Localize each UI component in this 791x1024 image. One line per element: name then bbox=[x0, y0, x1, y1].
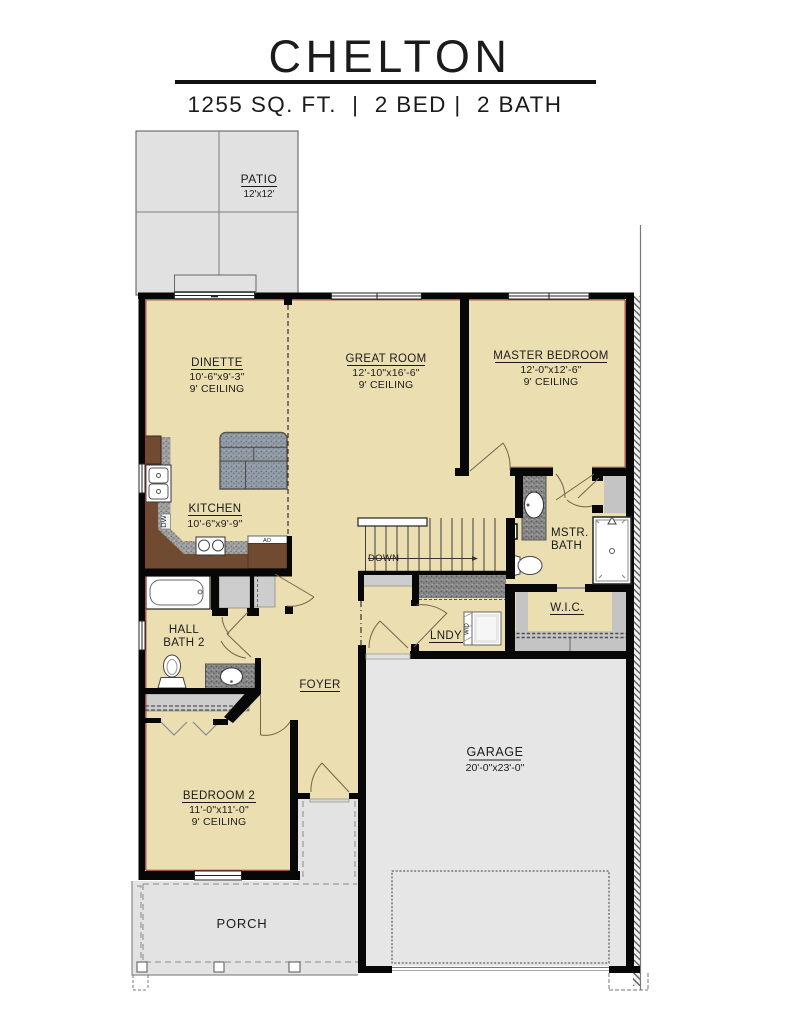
svg-text:W/D: W/D bbox=[465, 623, 471, 635]
svg-text:MASTER BEDROOM: MASTER BEDROOM bbox=[493, 350, 608, 362]
svg-text:DINETTE: DINETTE bbox=[191, 357, 243, 369]
svg-text:10'-6"x9'-9": 10'-6"x9'-9" bbox=[187, 518, 242, 530]
svg-text:BATH: BATH bbox=[551, 540, 582, 552]
svg-text:LNDY: LNDY bbox=[430, 630, 462, 642]
svg-text:10'-6"x9'-3": 10'-6"x9'-3" bbox=[189, 371, 244, 383]
svg-text:AO: AO bbox=[263, 538, 272, 544]
svg-text:PATIO: PATIO bbox=[241, 172, 278, 186]
svg-text:KITCHEN: KITCHEN bbox=[189, 503, 242, 515]
svg-text:11'-0"x11'-0": 11'-0"x11'-0" bbox=[189, 804, 249, 816]
svg-text:9' CEILING: 9' CEILING bbox=[190, 383, 245, 395]
svg-text:FOYER: FOYER bbox=[299, 679, 340, 691]
svg-text:DOWN: DOWN bbox=[368, 553, 399, 564]
svg-text:BATH 2: BATH 2 bbox=[163, 637, 205, 649]
svg-text:9' CEILING: 9' CEILING bbox=[359, 379, 414, 391]
svg-text:CHELTON: CHELTON bbox=[268, 31, 511, 82]
svg-text:GARAGE: GARAGE bbox=[466, 745, 523, 759]
svg-text:12'-0"x12'-6": 12'-0"x12'-6" bbox=[520, 364, 581, 376]
svg-text:HALL: HALL bbox=[169, 624, 199, 636]
svg-text:DW: DW bbox=[159, 514, 168, 527]
svg-text:9' CEILING: 9' CEILING bbox=[192, 816, 247, 828]
svg-text:BEDROOM 2: BEDROOM 2 bbox=[183, 790, 255, 802]
svg-text:GREAT ROOM: GREAT ROOM bbox=[345, 353, 426, 365]
svg-text:MSTR.: MSTR. bbox=[551, 527, 589, 539]
svg-text:PORCH: PORCH bbox=[217, 916, 268, 931]
svg-text:12'x12': 12'x12' bbox=[243, 189, 274, 200]
svg-text:1255 SQ. FT. | 2 BED | 2 BA: 1255 SQ. FT. | 2 BED | 2 BATH bbox=[188, 92, 563, 117]
svg-text:20'-0"x23'-0": 20'-0"x23'-0" bbox=[466, 762, 525, 774]
svg-text:9' CEILING: 9' CEILING bbox=[524, 376, 579, 388]
svg-text:W.I.C.: W.I.C. bbox=[550, 602, 583, 614]
svg-text:12'-10"x16'-6": 12'-10"x16'-6" bbox=[352, 367, 419, 379]
